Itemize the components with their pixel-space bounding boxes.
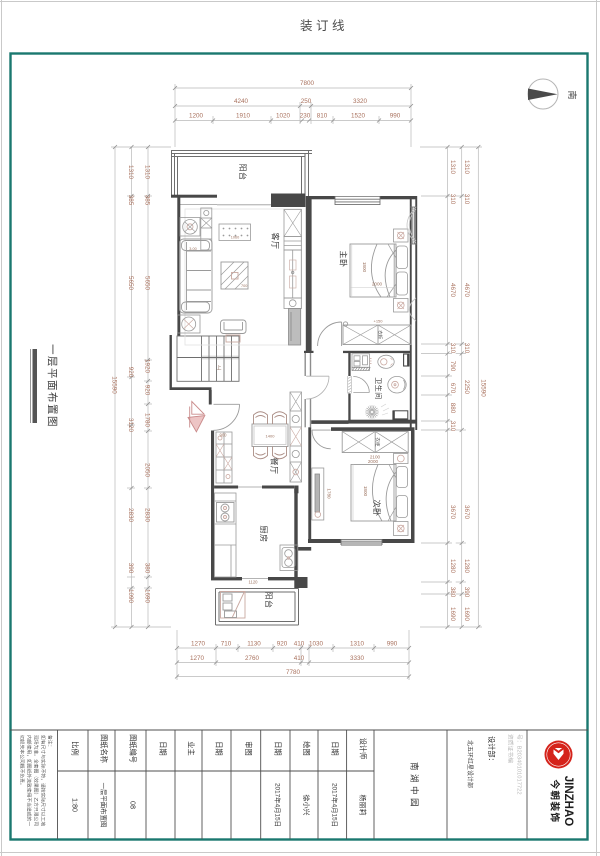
svg-text:1130: 1130 — [247, 641, 261, 648]
svg-text:670: 670 — [449, 383, 456, 394]
svg-text:2017年4月15日: 2017年4月15日 — [273, 783, 282, 827]
svg-text:一层平面布置图: 一层平面布置图 — [100, 783, 109, 828]
svg-text:1200: 1200 — [189, 113, 204, 120]
svg-text:1280: 1280 — [463, 559, 470, 574]
svg-text:比例: 比例 — [71, 741, 80, 755]
svg-text:阳台: 阳台 — [264, 592, 274, 609]
svg-text:4240: 4240 — [234, 98, 249, 105]
svg-text:2250: 2250 — [463, 380, 470, 395]
svg-text:250: 250 — [301, 98, 312, 105]
svg-text:日期: 日期 — [159, 741, 168, 755]
svg-text:2000: 2000 — [372, 282, 383, 287]
svg-text:餐厅: 餐厅 — [270, 458, 279, 475]
svg-text:5650: 5650 — [144, 276, 151, 291]
svg-text:设计师: 设计师 — [358, 738, 367, 760]
svg-text:1690: 1690 — [144, 589, 151, 604]
svg-text:1020: 1020 — [276, 113, 291, 120]
svg-text:710: 710 — [221, 641, 232, 648]
svg-text:1910: 1910 — [236, 113, 251, 120]
svg-text:主卧: 主卧 — [339, 251, 349, 268]
svg-text:图纸名称: 图纸名称 — [100, 734, 109, 763]
svg-text:衣柜: 衣柜 — [374, 437, 381, 447]
svg-text:810: 810 — [317, 113, 328, 120]
svg-text:号：B20340101017722: 号：B20340101017722 — [516, 734, 523, 795]
svg-text:+150: +150 — [373, 318, 383, 323]
svg-text:次卧: 次卧 — [372, 500, 382, 517]
svg-text:3330: 3330 — [350, 655, 365, 662]
svg-text:资质证书编: 资质证书编 — [507, 734, 515, 763]
svg-text:15590: 15590 — [480, 379, 487, 397]
svg-text:1400: 1400 — [266, 434, 276, 439]
svg-text:1780: 1780 — [327, 488, 332, 499]
svg-text:南: 南 — [567, 90, 578, 99]
svg-text:310: 310 — [463, 194, 470, 205]
svg-text:3120: 3120 — [127, 418, 134, 433]
svg-text:410: 410 — [294, 641, 305, 648]
svg-text:绘图: 绘图 — [302, 741, 311, 755]
svg-text:1120: 1120 — [248, 580, 258, 585]
svg-text:切损失本公司概不负责。: 切损失本公司概不负责。 — [19, 735, 26, 788]
svg-text:7780: 7780 — [286, 669, 301, 676]
svg-text:1270: 1270 — [190, 655, 205, 662]
svg-text:1090: 1090 — [127, 589, 134, 604]
svg-text:2100: 2100 — [370, 455, 381, 460]
svg-text:北五环红星设计部: 北五环红星设计部 — [466, 740, 474, 788]
svg-text:790: 790 — [449, 361, 456, 372]
svg-text:1690: 1690 — [463, 607, 470, 622]
svg-text:一层平面布置图: 一层平面布置图 — [46, 344, 58, 428]
svg-text:1520: 1520 — [351, 113, 366, 120]
svg-text:设计部：: 设计部： — [487, 736, 496, 765]
svg-text:2760: 2760 — [245, 655, 260, 662]
svg-text:2830: 2830 — [144, 508, 151, 523]
svg-text:3.00: 3.00 — [189, 247, 196, 251]
svg-text:图纸编号: 图纸编号 — [129, 734, 138, 763]
svg-text:业主: 业主 — [187, 741, 196, 755]
svg-text:1800: 1800 — [363, 486, 368, 497]
svg-text:990: 990 — [387, 641, 398, 648]
svg-text:1920: 1920 — [144, 359, 151, 374]
svg-text:1800: 1800 — [362, 262, 367, 273]
svg-text:2830: 2830 — [127, 508, 134, 523]
svg-text:1310: 1310 — [449, 160, 456, 175]
svg-text:310: 310 — [449, 421, 456, 432]
svg-text:南湖中园: 南湖中园 — [410, 762, 420, 810]
svg-text:日期: 日期 — [330, 741, 339, 755]
svg-text:日期: 日期 — [273, 741, 282, 755]
svg-text:2017年4月15日: 2017年4月15日 — [330, 783, 339, 827]
svg-text:1:80: 1:80 — [71, 798, 80, 812]
svg-text:3320: 3320 — [353, 98, 368, 105]
svg-text:990: 990 — [390, 113, 401, 120]
svg-text:内部使用，如图纸外流致使用不当造成的一: 内部使用，如图纸外流致使用不当造成的一 — [26, 735, 33, 826]
svg-text:1310: 1310 — [463, 160, 470, 175]
svg-text:1310: 1310 — [350, 641, 365, 648]
svg-text:4670: 4670 — [463, 283, 470, 298]
svg-text:230: 230 — [300, 113, 311, 120]
svg-text:3670: 3670 — [449, 505, 456, 520]
svg-text:310: 310 — [449, 194, 456, 205]
svg-text:1690: 1690 — [449, 607, 456, 622]
svg-text:1270: 1270 — [191, 641, 206, 648]
svg-text:15590: 15590 — [111, 376, 118, 394]
svg-text:今朝装饰: 今朝装饰 — [549, 778, 561, 823]
svg-text:380: 380 — [144, 563, 151, 574]
svg-text:现场为准。全套图（效果图）乙方只限公司: 现场为准。全套图（效果图）乙方只限公司 — [33, 735, 40, 826]
svg-text:卫生间: 卫生间 — [374, 377, 383, 400]
svg-text:厨房: 厨房 — [259, 526, 269, 543]
svg-text:880: 880 — [449, 403, 456, 414]
svg-text:1280: 1280 — [449, 559, 456, 574]
svg-text:310: 310 — [463, 343, 470, 354]
svg-text:385: 385 — [144, 195, 151, 206]
svg-text:衣柜: 衣柜 — [377, 330, 384, 340]
svg-text:7800: 7800 — [300, 80, 315, 87]
svg-text:杨丽莉: 杨丽莉 — [358, 795, 367, 816]
svg-text:客厅: 客厅 — [271, 233, 281, 250]
svg-text:1060: 1060 — [231, 236, 239, 240]
svg-text:1030: 1030 — [309, 641, 324, 648]
svg-text:920: 920 — [127, 367, 134, 378]
svg-text:如有尺寸与实际不符，请按实际尺寸以工地: 如有尺寸与实际不符，请按实际尺寸以工地 — [40, 735, 47, 826]
svg-text:审图: 审图 — [244, 741, 253, 755]
svg-text:1310: 1310 — [127, 165, 134, 180]
svg-text:日期: 日期 — [215, 741, 224, 755]
svg-text:920: 920 — [277, 641, 288, 648]
svg-text:JINZHAO: JINZHAO — [562, 776, 574, 827]
svg-text:08: 08 — [129, 801, 138, 809]
svg-text:徐小兴: 徐小兴 — [302, 795, 311, 816]
svg-text:390: 390 — [463, 587, 470, 598]
svg-text:380: 380 — [449, 587, 456, 598]
svg-text:2050: 2050 — [144, 463, 151, 478]
svg-text:4670: 4670 — [449, 283, 456, 298]
svg-text:3670: 3670 — [463, 505, 470, 520]
svg-text:备注：: 备注： — [47, 735, 54, 749]
svg-text:1780: 1780 — [144, 413, 151, 428]
svg-text:2000: 2000 — [368, 459, 379, 464]
svg-text:900: 900 — [220, 433, 228, 438]
svg-text:1310: 1310 — [144, 165, 151, 180]
svg-text:5650: 5650 — [127, 276, 134, 291]
svg-text:410: 410 — [294, 655, 305, 662]
svg-text:阳台: 阳台 — [238, 164, 248, 181]
svg-text:390: 390 — [127, 563, 134, 574]
svg-text:装订线: 装订线 — [300, 19, 348, 33]
svg-text:700: 700 — [241, 284, 247, 288]
svg-text:920: 920 — [144, 385, 151, 396]
svg-text:上: 上 — [216, 365, 221, 372]
svg-text:310: 310 — [449, 343, 456, 354]
svg-text:385: 385 — [127, 195, 134, 206]
